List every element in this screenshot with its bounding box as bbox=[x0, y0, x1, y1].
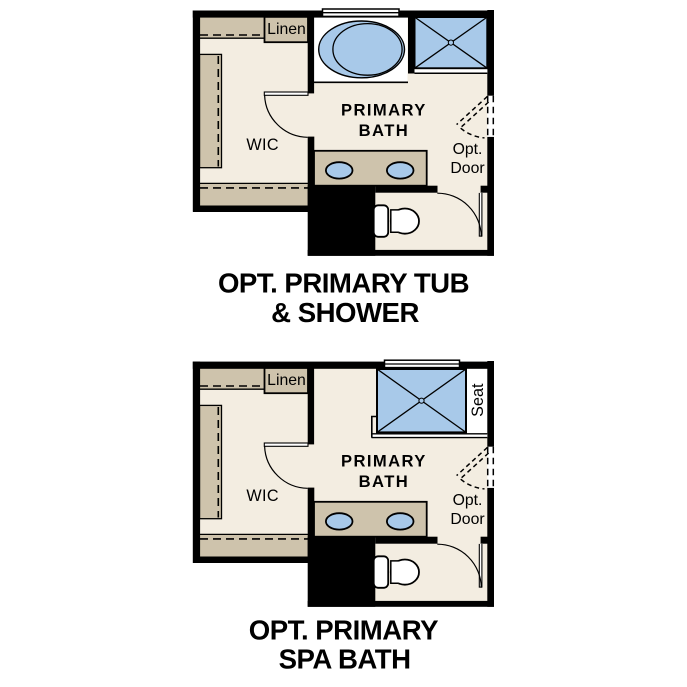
svg-text:Linen: Linen bbox=[267, 21, 306, 38]
svg-text:PRIMARY: PRIMARY bbox=[341, 452, 427, 471]
svg-text:Opt.: Opt. bbox=[453, 141, 483, 158]
svg-text:OPT. PRIMARY TUB: OPT. PRIMARY TUB bbox=[218, 267, 469, 298]
svg-text:OPT. PRIMARY: OPT. PRIMARY bbox=[249, 615, 438, 646]
svg-text:PRIMARY: PRIMARY bbox=[341, 101, 427, 120]
svg-text:Door: Door bbox=[450, 511, 484, 528]
svg-text:Door: Door bbox=[450, 160, 484, 177]
svg-text:WIC: WIC bbox=[246, 136, 279, 154]
svg-text:SPA BATH: SPA BATH bbox=[279, 644, 411, 675]
svg-text:Seat: Seat bbox=[469, 383, 487, 417]
svg-text:& SHOWER: & SHOWER bbox=[271, 297, 419, 328]
svg-text:BATH: BATH bbox=[359, 121, 409, 140]
svg-text:BATH: BATH bbox=[359, 472, 409, 491]
svg-text:Opt.: Opt. bbox=[453, 492, 483, 509]
svg-text:WIC: WIC bbox=[246, 487, 279, 505]
svg-text:Linen: Linen bbox=[267, 372, 306, 389]
